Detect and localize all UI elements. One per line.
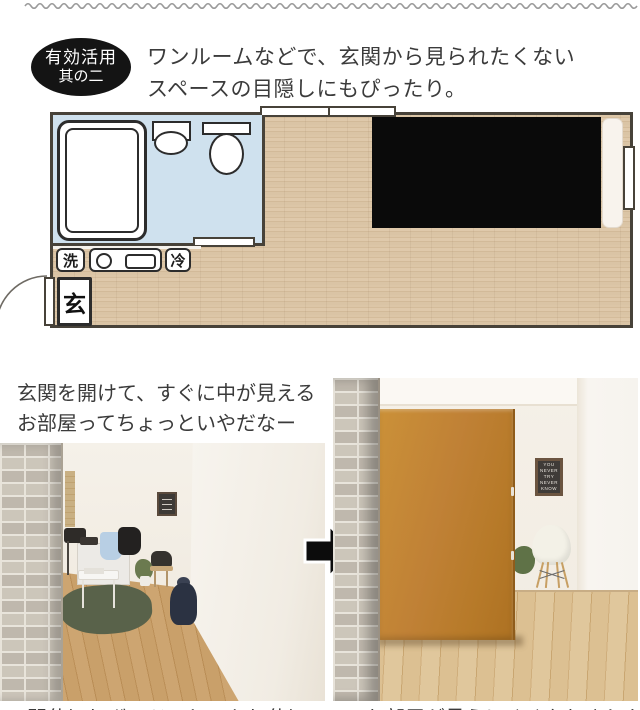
- poster-line: KNOW: [541, 486, 557, 492]
- cabinet-items: [80, 537, 98, 545]
- board-hinge: [511, 487, 514, 496]
- hanging-jacket: [118, 527, 141, 555]
- wall-poster: [157, 492, 177, 516]
- after-caption: 間仕切りボードでしっかり仕切って、お部屋が見えにくくなりました: [27, 702, 640, 710]
- balcony-curtain: [602, 118, 623, 228]
- kitchen-unit: [89, 248, 162, 272]
- entrance-label-box: 玄: [57, 277, 92, 326]
- sink-bowl: [154, 131, 188, 155]
- kitchen-sink: [125, 254, 156, 269]
- crouching-person: [170, 583, 197, 625]
- wall-poster: YOU NEVER TRY NEVER KNOW: [535, 458, 563, 496]
- window-divider: [328, 108, 330, 115]
- washer-label: 洗: [63, 250, 78, 271]
- headline: ワンルームなどで、玄関から見られたくない スペースの目隠しにもぴったり。: [147, 42, 575, 106]
- bathroom-door-opening: [193, 237, 255, 247]
- rack-leg: [67, 541, 69, 575]
- before-caption-line2: お部屋ってちょっといやだなー: [17, 409, 315, 439]
- usage-badge: 有効活用 其の二: [31, 38, 131, 96]
- promo-section: 有効活用 其の二 ワンルームなどで、玄関から見られたくない スペースの目隠しにも…: [0, 0, 640, 710]
- plant-pot: [140, 576, 150, 586]
- before-caption: 玄関を開けて、すぐに中が見える お部屋ってちょっといやだなー: [17, 379, 315, 439]
- kitchen-burner: [96, 253, 112, 269]
- window-top: [260, 106, 396, 117]
- stool-leg: [166, 571, 168, 587]
- brick-wall-left: [333, 378, 380, 701]
- entrance-door-swing-arc: [0, 275, 48, 329]
- entrance-label: 玄: [63, 285, 86, 319]
- squiggle-divider: [0, 0, 640, 12]
- shell-chair: [532, 525, 571, 565]
- partition-board: [378, 409, 515, 640]
- badge-line2: 其の二: [58, 68, 103, 86]
- bathtub: [57, 120, 147, 241]
- badge-line1: 有効活用: [45, 48, 117, 68]
- headline-line2: スペースの目隠しにもぴったり。: [147, 74, 575, 106]
- toilet-bowl: [209, 133, 244, 175]
- table-leg: [82, 580, 84, 608]
- fridge-label: 冷: [170, 250, 185, 271]
- right-wall: [577, 378, 638, 604]
- headline-line1: ワンルームなどで、玄関から見られたくない: [147, 42, 575, 74]
- washer-label-box: 洗: [56, 248, 85, 272]
- brick-wall-left: [0, 443, 63, 701]
- before-photo: [0, 443, 325, 701]
- floorplan-diagram: 洗 冷 玄: [50, 112, 633, 328]
- after-photo: YOU NEVER TRY NEVER KNOW: [333, 378, 638, 701]
- shelf-strip: [65, 471, 75, 527]
- table-leg: [113, 580, 115, 608]
- fridge-label-box: 冷: [165, 248, 191, 272]
- hidden-space-rect: [372, 117, 601, 228]
- window-right: [623, 146, 635, 210]
- squiggle-path: [25, 4, 637, 9]
- table-papers: [84, 568, 104, 574]
- bathroom-area: [53, 115, 265, 246]
- stool-leg: [154, 571, 156, 587]
- board-hinge: [511, 551, 514, 560]
- before-caption-line1: 玄関を開けて、すぐに中が見える: [17, 379, 315, 409]
- bathtub-inner: [65, 128, 139, 233]
